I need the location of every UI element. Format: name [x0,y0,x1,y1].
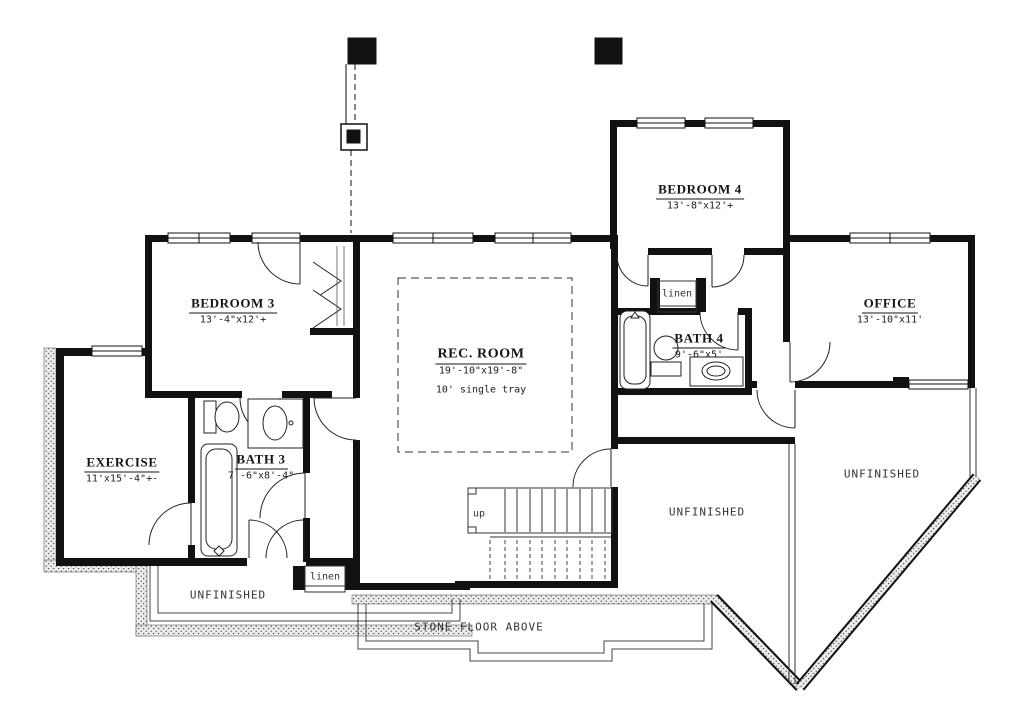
door-bottom-left [249,520,287,558]
unfinished-label-right: UNFINISHED [844,468,920,481]
linen-label-top: linen [662,289,692,300]
room-label-office: OFFICE 13'-10"x11' [857,295,923,326]
room-label-rec-room: REC. ROOM 19'-10"x19'-8" 10' single tray [435,345,526,396]
unfinished-label-left: UNFINISHED [190,589,266,602]
room-name: BATH 4 [672,331,725,349]
door-bedroom4-right [712,255,744,287]
window [92,346,142,356]
stone-floor-label: STONE FLOOR ABOVE [414,621,544,634]
room-name: OFFICE [862,296,919,314]
room-name: REC. ROOM [435,347,526,365]
window [850,233,930,243]
room-label-bedroom-4: BEDROOM 4 13'-8"x12'+ [656,181,744,212]
door-stairs [573,449,611,487]
room-name: EXERCISE [84,455,159,473]
window [637,118,685,128]
room-dimensions: 7'-6"x8'-4" [228,471,294,482]
stairs-up-label: up [473,509,485,520]
room-label-bedroom-3: BEDROOM 3 13'-4"x12'+ [189,295,277,326]
door-office [790,342,830,382]
room-dimensions: 9'-6"x5' [672,350,725,361]
room-name: BEDROOM 4 [656,182,744,200]
door-bottom-right [266,520,304,558]
door-exercise [149,503,191,545]
windows [92,118,968,389]
unfinished-label-center: UNFINISHED [669,506,745,519]
unfinished-stud-walls [789,388,976,684]
window [252,233,300,243]
room-dimensions: 13'-4"x12'+ [189,315,277,326]
room-dimensions: 11'x15'-4"+- [84,474,159,485]
door-bedroom4-left [617,255,648,286]
sink-icon [263,406,287,440]
room-dimensions: 13'-8"x12'+ [656,201,744,212]
window [705,118,753,128]
room-note: 10' single tray [435,385,526,396]
room-name: BEDROOM 3 [189,296,277,314]
room-label-exercise: EXERCISE 11'x15'-4"+- [84,454,159,485]
window [168,233,230,243]
stairs [468,488,612,579]
linen-label-bottom: linen [310,572,340,583]
room-dimensions: 13'-10"x11' [857,315,923,326]
foundation-stipple [44,348,977,687]
room-name: BATH 3 [234,452,287,470]
toilet-icon [204,401,216,433]
door-rec-hall [314,398,356,440]
room-dimensions: 19'-10"x19'-8" [435,366,526,377]
window [909,380,968,389]
support-posts [341,38,622,233]
room-label-bath-3: BATH 3 7'-6"x8'-4" [228,451,294,482]
door-hall-unfinished [757,390,795,428]
closet-bifold-doors [313,246,344,328]
window [495,233,571,243]
window [393,233,473,243]
door-bedroom3 [258,242,300,284]
room-label-bath-4: BATH 4 9'-6"x5' [672,330,725,361]
floor-plan: BEDROOM 3 13'-4"x12'+ EXERCISE 11'x15'-4… [0,0,1024,716]
